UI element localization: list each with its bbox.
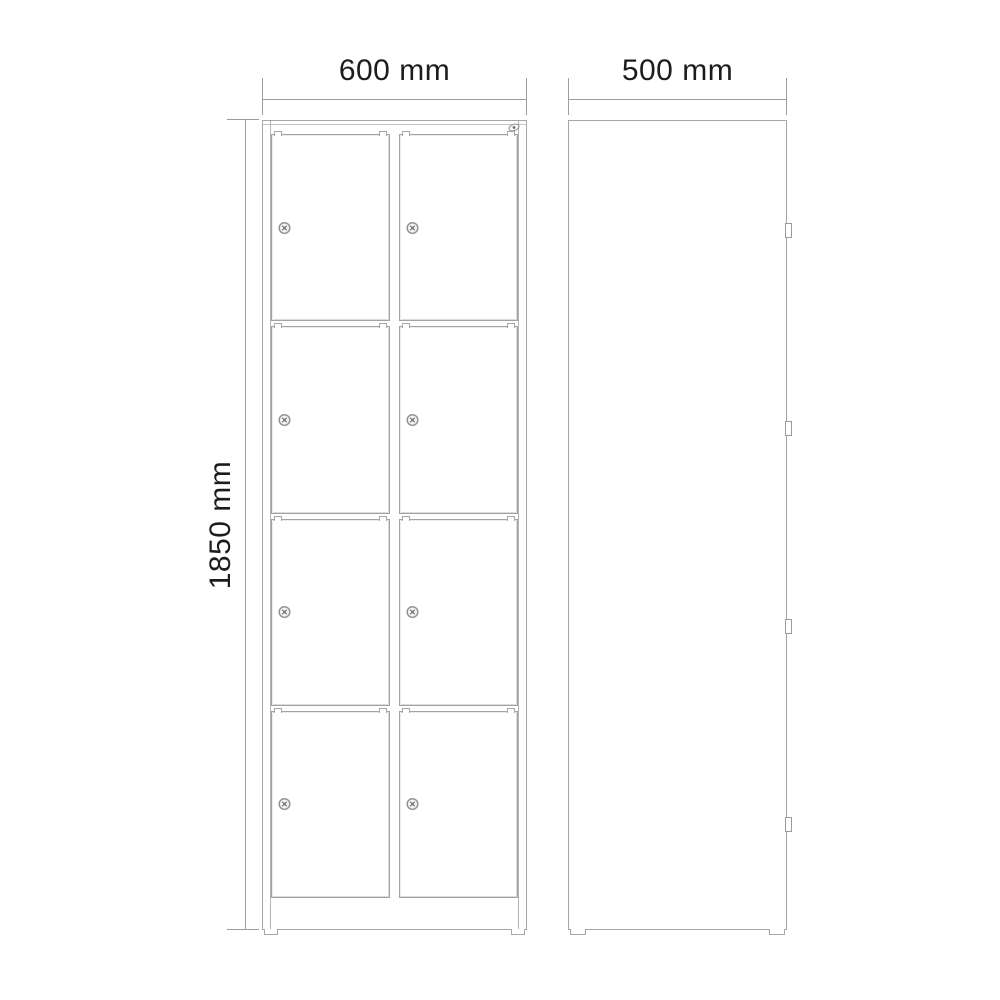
front-foot-left [264, 929, 278, 935]
front-foot-right [511, 929, 525, 935]
door-hinge-tab [507, 323, 515, 328]
technical-drawing-canvas: 600 mm 500 mm 1850 mm [0, 0, 1000, 1000]
front-height-dimension-tick-bottom [227, 929, 259, 930]
side-depth-dimension-label: 500 mm [568, 54, 787, 88]
cam-lock-icon [406, 606, 419, 619]
locker-door [271, 519, 390, 706]
locker-door [271, 711, 390, 898]
side-foot-left [570, 929, 586, 935]
hinge-icon [785, 421, 792, 436]
cabinet-right-wall-line [518, 121, 519, 929]
door-hinge-tab [507, 516, 515, 521]
hinge-icon [785, 817, 792, 832]
cam-lock-icon [278, 221, 291, 234]
door-hinge-tab [274, 131, 282, 136]
cam-lock-icon [278, 798, 291, 811]
cam-lock-icon [278, 606, 291, 619]
cam-lock-icon [278, 413, 291, 426]
door-hinge-tab [507, 708, 515, 713]
side-depth-dimension-tick-right [786, 78, 787, 115]
front-width-dimension-label: 600 mm [262, 54, 527, 88]
cabinet-top-edge-line [263, 124, 526, 125]
locker-door [399, 519, 518, 706]
side-depth-dimension-tick-left [568, 78, 569, 115]
front-width-dimension-line [262, 99, 527, 100]
door-hinge-tab [274, 708, 282, 713]
cam-lock-icon [406, 221, 419, 234]
door-hinge-tab [379, 708, 387, 713]
door-hinge-tab [274, 323, 282, 328]
door-hinge-tab [402, 131, 410, 136]
door-hinge-tab [379, 516, 387, 521]
door-hinge-tab [379, 131, 387, 136]
door-grid [271, 134, 518, 898]
locker-side-view [568, 120, 787, 930]
locker-front-view [262, 120, 527, 930]
door-hinge-tab [402, 708, 410, 713]
front-height-dimension-line [245, 120, 246, 930]
locker-door [271, 326, 390, 513]
side-foot-right [769, 929, 785, 935]
front-height-dimension-label: 1850 mm [206, 375, 236, 675]
door-hinge-tab [402, 323, 410, 328]
door-hinge-tab [507, 131, 515, 136]
locker-door [271, 134, 390, 321]
hinge-icon [785, 223, 792, 238]
door-hinge-tab [379, 323, 387, 328]
front-width-dimension-tick-left [262, 78, 263, 115]
front-width-dimension-tick-right [526, 78, 527, 115]
door-hinge-tab [274, 516, 282, 521]
door-hinge-tab [402, 516, 410, 521]
side-depth-dimension-line [568, 99, 787, 100]
cam-lock-icon [406, 798, 419, 811]
locker-door [399, 134, 518, 321]
locker-door [399, 326, 518, 513]
cam-lock-icon [406, 413, 419, 426]
front-height-dimension-tick-top [227, 119, 259, 120]
locker-door [399, 711, 518, 898]
hinge-icon [785, 619, 792, 634]
